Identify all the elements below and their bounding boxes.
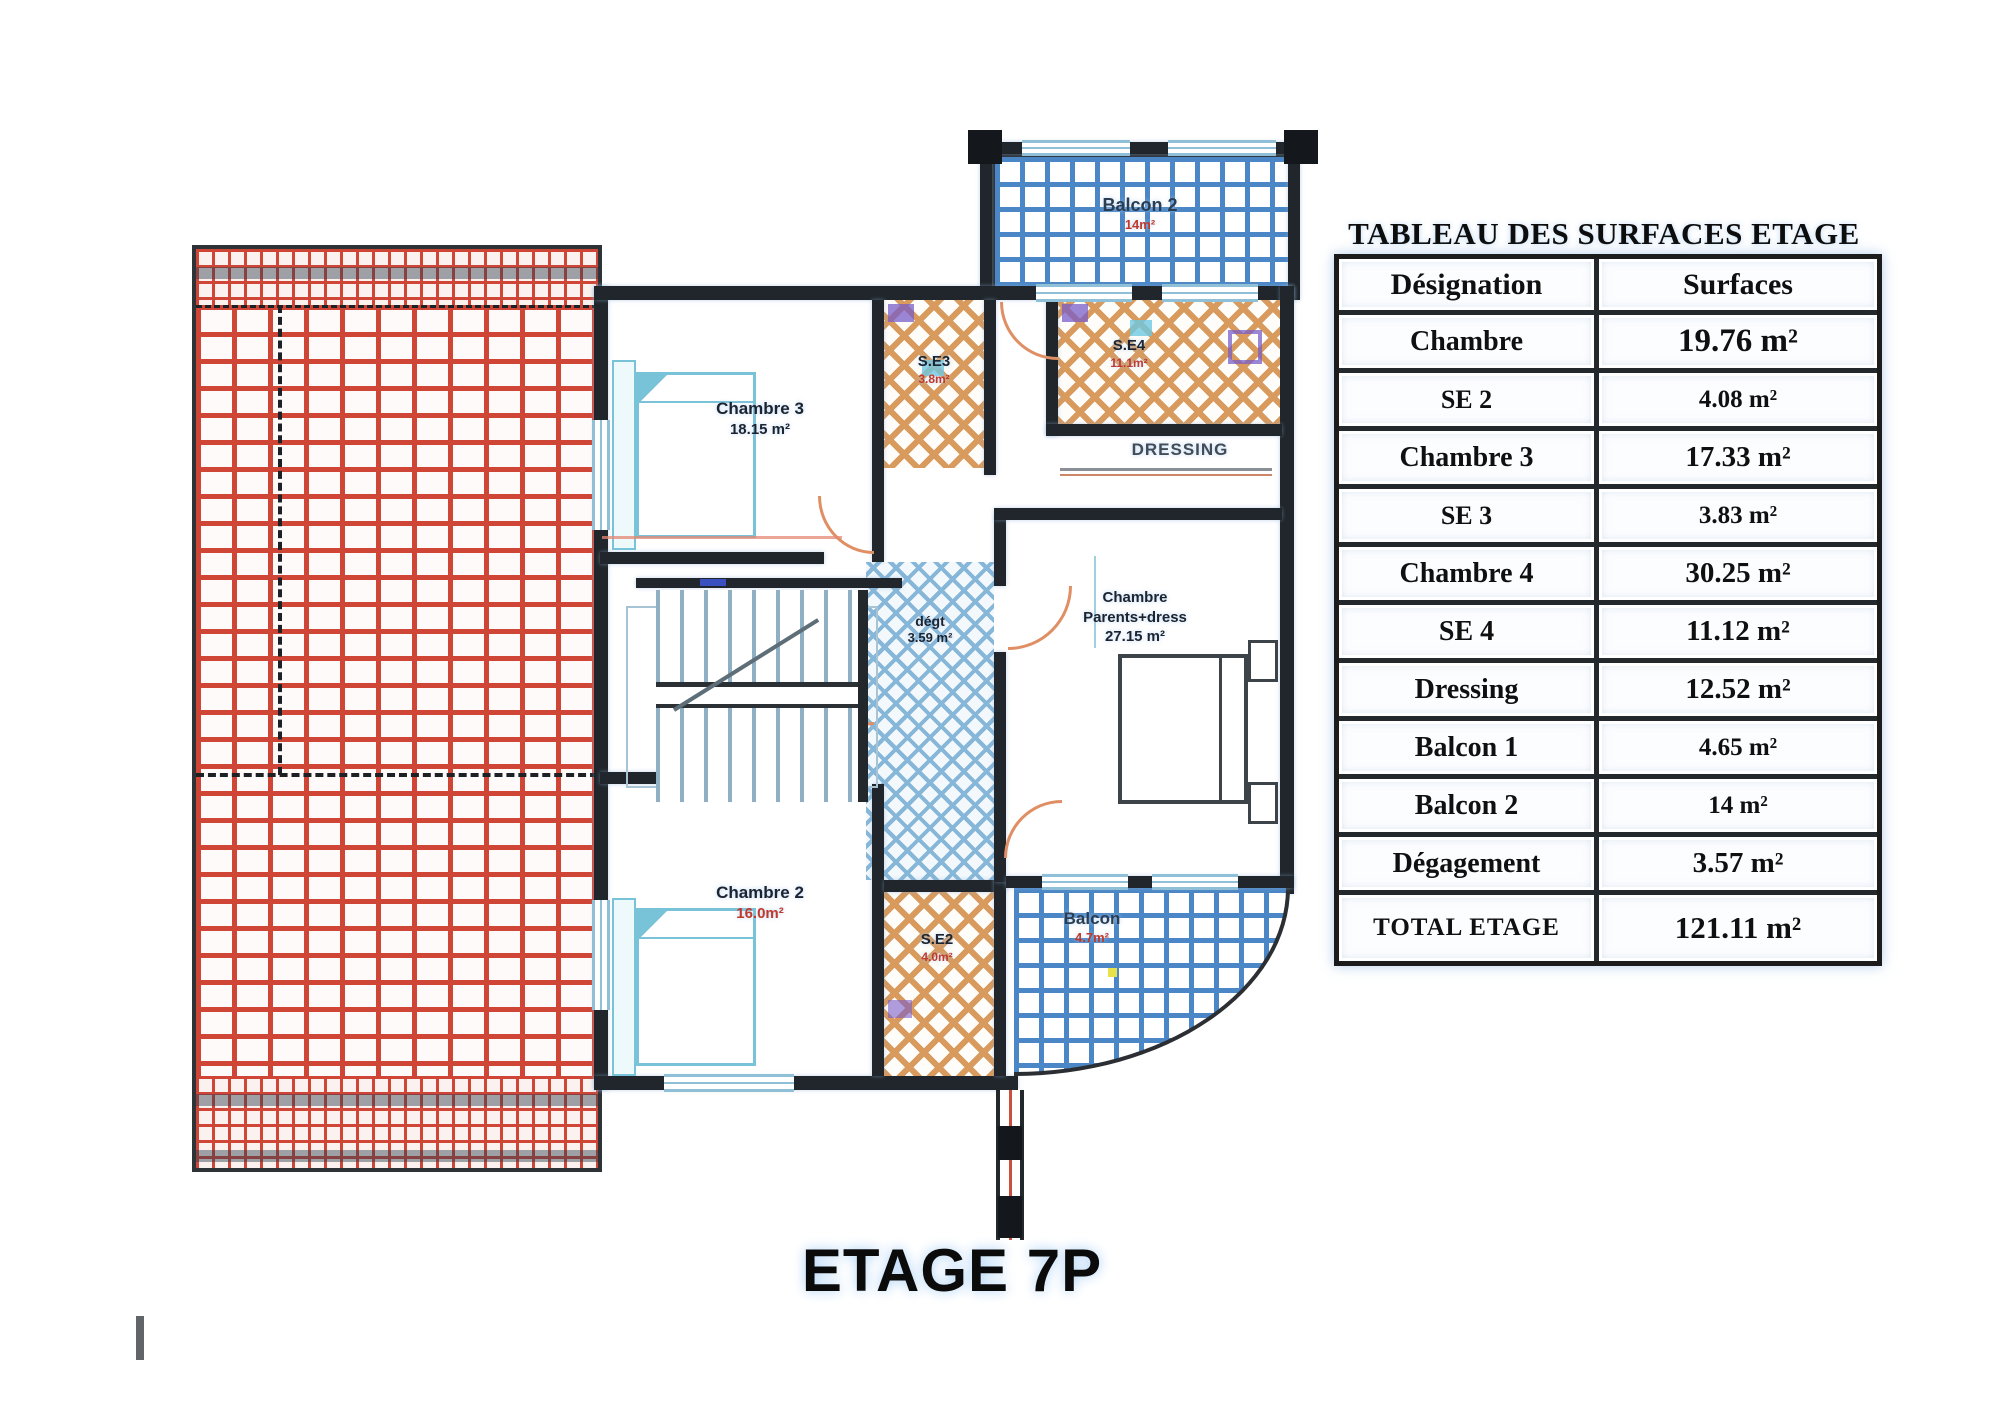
balcony2-left-wall [980,142,992,300]
roof-ridge-bottom [196,1076,598,1168]
table-row: SE 4 11.12 m² [1339,605,1877,663]
dressing-top-wall [1046,424,1282,436]
degagement-name: dégt [872,612,988,630]
se3-area: 3.8m² [892,372,976,388]
roof-dashed-line-middle [196,773,598,777]
degagement-area: 3.59 m² [872,630,988,647]
chambre3-headboard [612,360,636,550]
degagement-hatch [866,562,994,880]
degagement-label: dégt 3.59 m² [872,612,988,647]
se4-sink [1130,320,1152,336]
balcony2-post-right [1284,130,1318,164]
roof-dashed-line-vertical [278,305,282,775]
row-designation: SE 2 [1339,373,1599,426]
balcony1-window-right [1152,874,1238,890]
table-row: Chambre 4 30.25 m² [1339,547,1877,605]
parents-left-wall-upper [994,516,1006,586]
se2-top-wall [884,880,1006,892]
parents-line2: Parents+dress [1040,608,1230,628]
dressing-bottom-wall [994,508,1282,520]
chambre3-door-arc [818,496,874,554]
table-title: TABLEAU DES SURFACES ETAGE [1330,216,1878,252]
chambre3-label: Chambre 3 18.15 m² [660,398,860,440]
chambre2-name: Chambre 2 [660,882,860,904]
roof-brick-pattern [196,305,598,1076]
row-surface: 3.57 m² [1599,837,1877,890]
balcony2-post-left [968,130,1002,164]
table-row: SE 2 4.08 m² [1339,373,1877,431]
table-row: Dégagement 3.57 m² [1339,837,1877,895]
dressing-label: DRESSING [1090,440,1270,460]
page-title: ETAGE 7P [702,1236,1202,1305]
se4-label: S.E4 11.1m² [1084,336,1174,371]
parents-line1: Chambre [1040,588,1230,608]
row-surface: 30.25 m² [1599,547,1877,600]
top-wall-window-right [1162,284,1258,302]
balcony-door-arc [1004,800,1062,858]
bottom-wall-window [664,1074,794,1092]
row-surface: 3.83 m² [1599,489,1877,542]
row-designation: Balcon 2 [1339,779,1599,832]
se3-fixture [888,304,914,322]
table-header-row: Désignation Surfaces [1339,259,1877,315]
se2-room [884,892,994,1076]
dressing-rail-line2 [1060,474,1272,476]
dressing-rail-line [1060,468,1272,471]
chambre2-window [592,900,610,1010]
chimney-block-1 [998,1126,1022,1160]
chambre3-bottom-wall [600,552,824,564]
table-row: Chambre 19.76 m² [1339,315,1877,373]
row-surface: 12.52 m² [1599,663,1877,716]
row-surface: 11.12 m² [1599,605,1877,658]
se2-area: 4.0m² [892,950,982,966]
se4-shower [1228,330,1262,364]
se3-label: S.E3 3.8m² [892,352,976,387]
total-designation: TOTAL ETAGE [1339,895,1599,961]
chambre2-area: 16.0m² [660,904,860,924]
balcon-area: 4.7m² [1022,930,1162,947]
row-designation: Chambre 4 [1339,547,1599,600]
table-total-row: TOTAL ETAGE 121.11 m² [1339,895,1877,961]
floor-plan-page: Chambre 3 18.15 m² Chambre 2 16.0m² Cham… [0,0,2000,1414]
table-row: Balcon 2 14 m² [1339,779,1877,837]
table-row: Chambre 3 17.33 m² [1339,431,1877,489]
chambre3-area: 18.15 m² [660,420,860,440]
column-header-designation: Désignation [1339,259,1599,310]
table-row: Dressing 12.52 m² [1339,663,1877,721]
stairs-top-wall [636,578,902,588]
row-surface: 4.08 m² [1599,373,1877,426]
row-surface: 14 m² [1599,779,1877,832]
parents-nightstand-top [1248,640,1278,682]
chambre2-bed [636,908,756,1066]
se4-name: S.E4 [1084,336,1174,356]
left-margin-tick [136,1316,144,1360]
row-surface: 4.65 m² [1599,721,1877,774]
chambre3-name: Chambre 3 [660,398,860,420]
top-wall-window-left [1036,284,1132,302]
column-header-surfaces: Surfaces [1599,259,1877,310]
se3-right-wall [984,300,996,475]
total-surface: 121.11 m² [1599,895,1877,961]
staircase [656,590,868,802]
se2-right-wall [994,880,1006,1076]
row-designation: SE 4 [1339,605,1599,658]
chambre3-bed [636,372,756,538]
balcon-label: Balcon 4.7m² [1022,908,1162,947]
se4-fixture [1062,304,1088,322]
stairs-blue-mark [700,579,726,586]
se2-name: S.E2 [892,930,982,950]
se4-area: 11.1m² [1084,356,1174,372]
balcon2-area: 14m² [1058,217,1222,234]
row-surface: 19.76 m² [1599,315,1877,368]
guide-line-pink [602,536,842,539]
parents-area: 27.15 m² [1040,627,1230,647]
row-designation: Chambre 3 [1339,431,1599,484]
se2-fixture [888,1000,912,1018]
chambre2-right-wall [872,784,884,1076]
table-row: Balcon 1 4.65 m² [1339,721,1877,779]
row-designation: Balcon 1 [1339,721,1599,774]
balcony-yellow-dot [1108,968,1117,977]
roof-ridge-top [196,249,598,305]
parents-label: Chambre Parents+dress 27.15 m² [1040,588,1230,647]
balcony2-window-right [1168,140,1276,156]
roof-hatch [192,245,602,1172]
exterior-wall-bottom [594,1076,1018,1090]
se2-label: S.E2 4.0m² [892,930,982,965]
balcon-name: Balcon [1022,908,1162,930]
chimney-block-2 [998,1196,1022,1238]
balcony2-window-left [1022,140,1130,156]
table-row: SE 3 3.83 m² [1339,489,1877,547]
parents-bed [1118,654,1248,804]
row-designation: Chambre [1339,315,1599,368]
row-designation: Dressing [1339,663,1599,716]
chambre3-window [592,420,610,530]
chambre2-label: Chambre 2 16.0m² [660,882,860,924]
balcony2-right-wall [1288,142,1300,300]
surfaces-table: Désignation Surfaces Chambre 19.76 m² SE… [1334,254,1882,966]
exterior-wall-right [1280,286,1294,894]
balcon2-label: Balcon 2 14m² [1058,194,1222,234]
corridor-door-arc [1000,302,1058,360]
balcony1-window-left [1042,874,1128,890]
row-designation: Dégagement [1339,837,1599,890]
roof-dashed-line-top [196,305,598,308]
row-surface: 17.33 m² [1599,431,1877,484]
se3-name: S.E3 [892,352,976,372]
parents-nightstand-bottom [1248,782,1278,824]
chambre2-headboard [612,898,636,1076]
balcon2-name: Balcon 2 [1058,194,1222,217]
row-designation: SE 3 [1339,489,1599,542]
